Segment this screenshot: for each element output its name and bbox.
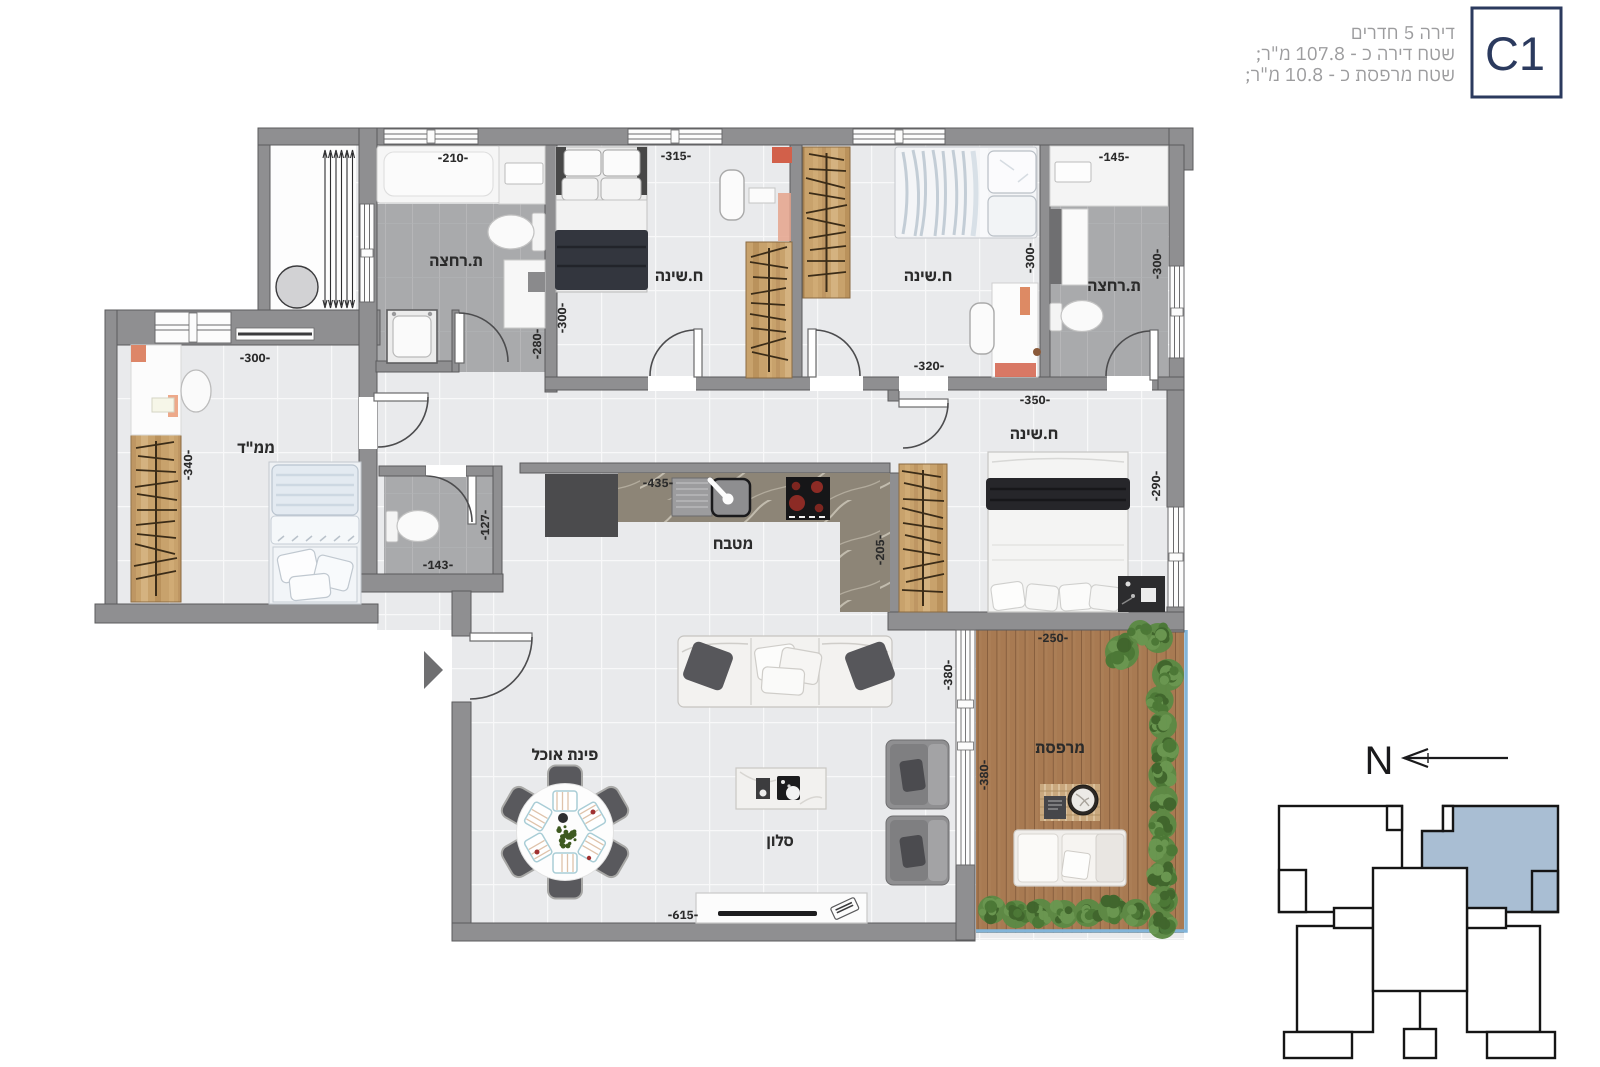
svg-text:C1: C1 bbox=[1485, 27, 1545, 80]
svg-text:N: N bbox=[1365, 739, 1394, 783]
